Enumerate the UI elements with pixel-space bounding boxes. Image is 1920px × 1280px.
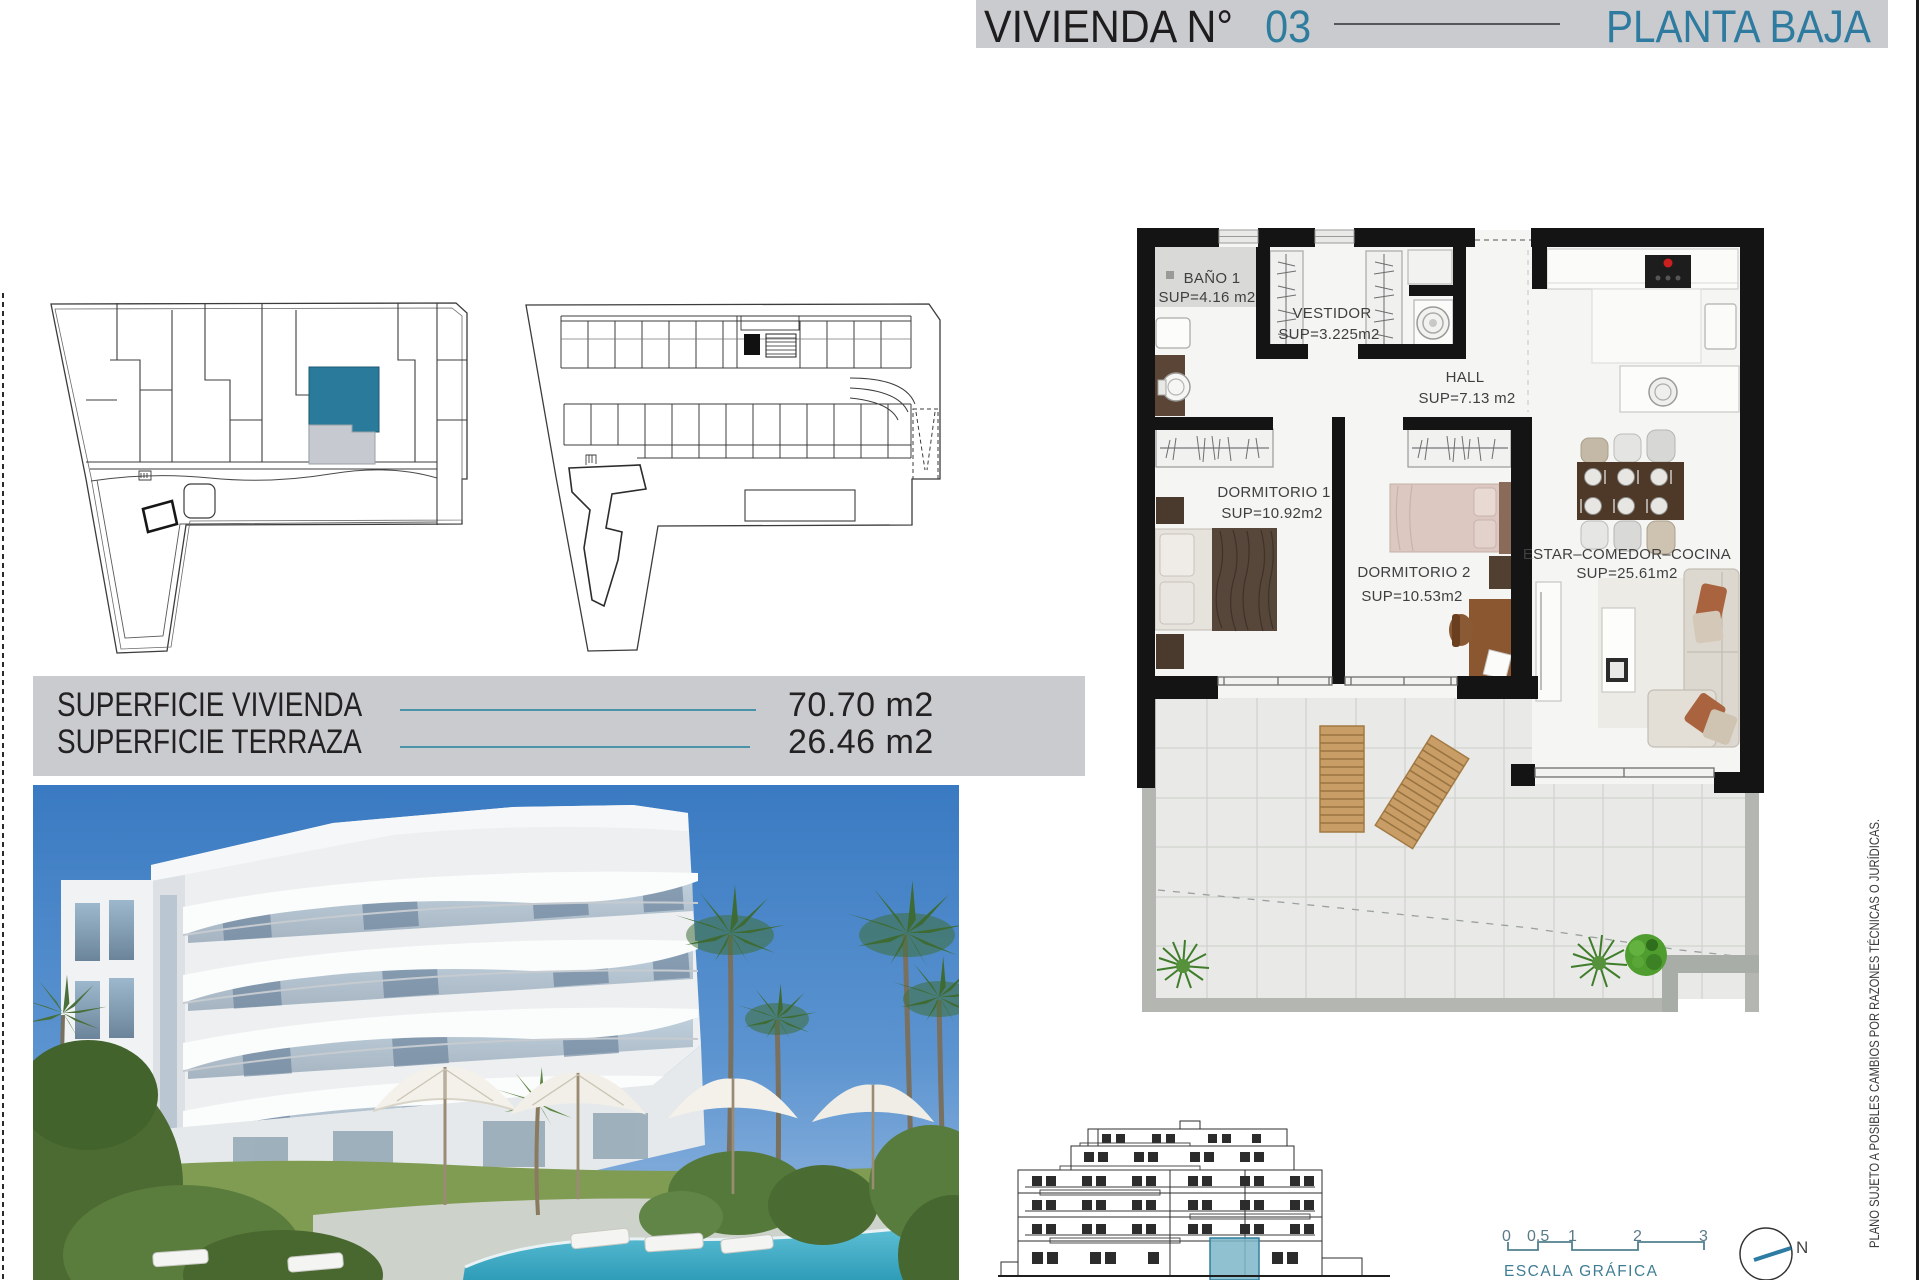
svg-text:SUP=10.92m2: SUP=10.92m2 — [1221, 505, 1322, 522]
svg-text:0: 0 — [1502, 1228, 1511, 1245]
svg-text:HALL: HALL — [1446, 369, 1485, 386]
svg-text:SUP=25.61m2: SUP=25.61m2 — [1576, 565, 1677, 582]
svg-text:BAÑO 1: BAÑO 1 — [1184, 270, 1241, 287]
svg-text:SUP=7.13 m2: SUP=7.13 m2 — [1418, 390, 1515, 407]
svg-text:DORMITORIO 1: DORMITORIO 1 — [1217, 484, 1330, 501]
svg-text:SUP=4.16 m2: SUP=4.16 m2 — [1158, 289, 1255, 306]
svg-text:SUP=10.53m2: SUP=10.53m2 — [1361, 588, 1462, 605]
svg-text:SUP=3.225m2: SUP=3.225m2 — [1278, 326, 1379, 343]
svg-text:VESTIDOR: VESTIDOR — [1292, 305, 1371, 322]
svg-text:ESTAR–COMEDOR–COCINA: ESTAR–COMEDOR–COCINA — [1523, 546, 1731, 563]
svg-text:N: N — [1796, 1238, 1808, 1257]
svg-text:ESCALA GRÁFICA: ESCALA GRÁFICA — [1504, 1263, 1659, 1280]
svg-text:DORMITORIO 2: DORMITORIO 2 — [1357, 564, 1470, 581]
